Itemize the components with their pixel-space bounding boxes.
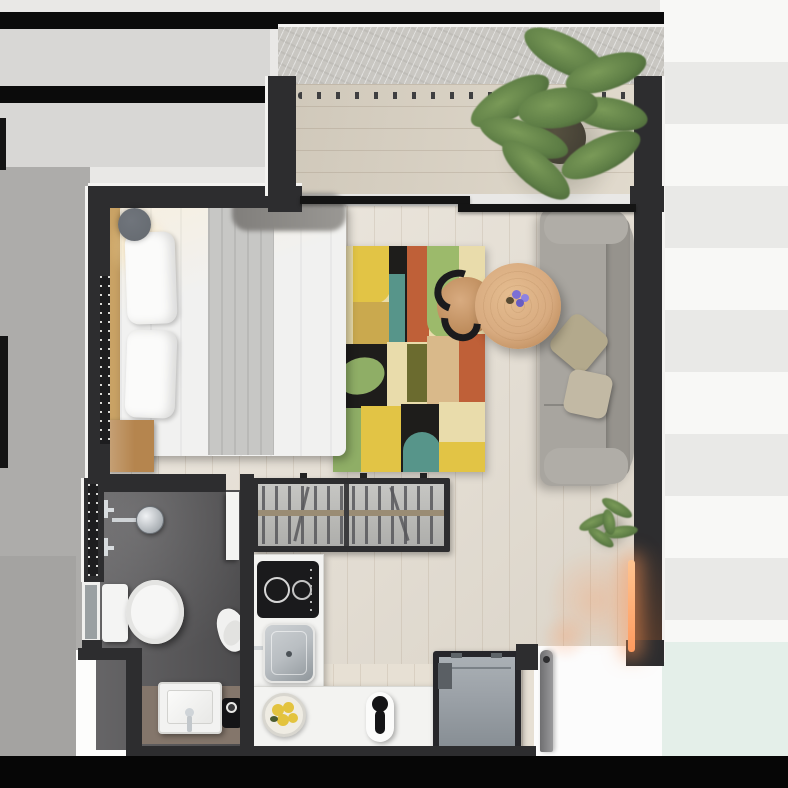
fruit: [283, 702, 294, 713]
induction-cooktop: [257, 561, 319, 618]
wardrobe-bracket: [300, 473, 307, 478]
flower-vase: [504, 288, 534, 312]
bed-pillow: [124, 231, 177, 325]
sink-drain: [286, 651, 292, 657]
rug-patch: [439, 402, 485, 444]
wardrobe: [252, 478, 450, 552]
rug-patch: [401, 404, 441, 472]
sofa-armrest: [544, 210, 628, 244]
sofa-pillow: [562, 368, 614, 420]
fruit-leaf: [270, 716, 278, 722]
wall-segment: [126, 648, 142, 758]
rug-patch: [407, 246, 429, 344]
washer-hinge: [451, 653, 462, 658]
accent-light-glow: [540, 614, 590, 660]
rug-patch: [407, 344, 427, 402]
bathroom-door-leaf: [226, 492, 239, 560]
kettle-handle: [375, 710, 385, 734]
wall-hatch-bathroom: [88, 484, 98, 576]
burner-ring: [292, 580, 312, 600]
background-left-lower: [0, 556, 76, 758]
background-right-lower: [660, 642, 788, 758]
rug-patch: [389, 274, 405, 344]
ceiling-light: [118, 208, 151, 241]
balcony-wall-left: [268, 76, 296, 196]
washbasin: [158, 682, 222, 734]
shower-head: [136, 506, 164, 534]
rug-patch: [427, 336, 461, 410]
wardrobe-bracket: [420, 473, 427, 478]
wall-hatch-bedroom: [100, 276, 110, 444]
bathroom-wall-right: [240, 474, 254, 758]
neighbor-wall-line: [0, 86, 270, 103]
neighbor-wall-stub: [0, 336, 8, 468]
sliding-door-panel: [300, 196, 470, 204]
toilet-tank: [102, 584, 128, 642]
washbasin-tap-stem: [187, 716, 192, 732]
wardrobe-rail: [258, 510, 444, 516]
wardrobe-bracket: [360, 473, 367, 478]
bed-runner-blanket: [208, 202, 274, 455]
entry-door-handle: [543, 656, 550, 663]
background-band: [0, 28, 270, 86]
wall-segment: [78, 648, 130, 660]
bottom-crop-band: [0, 756, 788, 788]
shower-valve: [104, 500, 108, 518]
rug-semicircle-motif: [403, 432, 441, 472]
flower: [516, 299, 524, 307]
rug-patch: [353, 302, 391, 346]
rug-patch: [361, 406, 403, 472]
kettle: [366, 692, 394, 742]
cooktop-controls: [310, 569, 312, 611]
washer-control-panel: [438, 663, 452, 689]
bed-pillow: [124, 329, 177, 419]
flower: [512, 290, 521, 299]
entry-door-jamb: [516, 644, 538, 670]
entry-door-leaf: [540, 650, 553, 752]
floor-plant: [578, 498, 638, 558]
washer-lid-seam: [443, 667, 511, 669]
rug-patch: [353, 246, 391, 304]
floor-plan: [0, 0, 788, 788]
led-accent-light: [628, 560, 635, 652]
background-band: [0, 103, 270, 167]
shower-valve: [104, 538, 108, 556]
toilet: [126, 580, 184, 644]
sofa-backrest: [606, 216, 630, 478]
wardrobe-divider: [344, 484, 349, 546]
vanity-tray: [222, 698, 242, 728]
sliding-door-jamb: [268, 186, 302, 212]
neighbor-wall-stub: [0, 118, 6, 170]
washer-hinge: [491, 653, 502, 658]
balcony-plant: [460, 26, 648, 208]
bathroom-wall-top: [96, 474, 226, 492]
burner-ring: [264, 577, 290, 603]
washing-machine: [433, 651, 521, 751]
bathroom-window: [82, 582, 100, 642]
fruit: [288, 713, 298, 723]
nightstand: [106, 420, 154, 472]
kitchen-sink: [263, 623, 315, 683]
fruit-bowl: [262, 693, 306, 737]
rug-patch: [459, 334, 485, 410]
sofa-armrest: [544, 448, 628, 484]
cup: [226, 702, 237, 713]
rug-patch: [439, 442, 485, 472]
